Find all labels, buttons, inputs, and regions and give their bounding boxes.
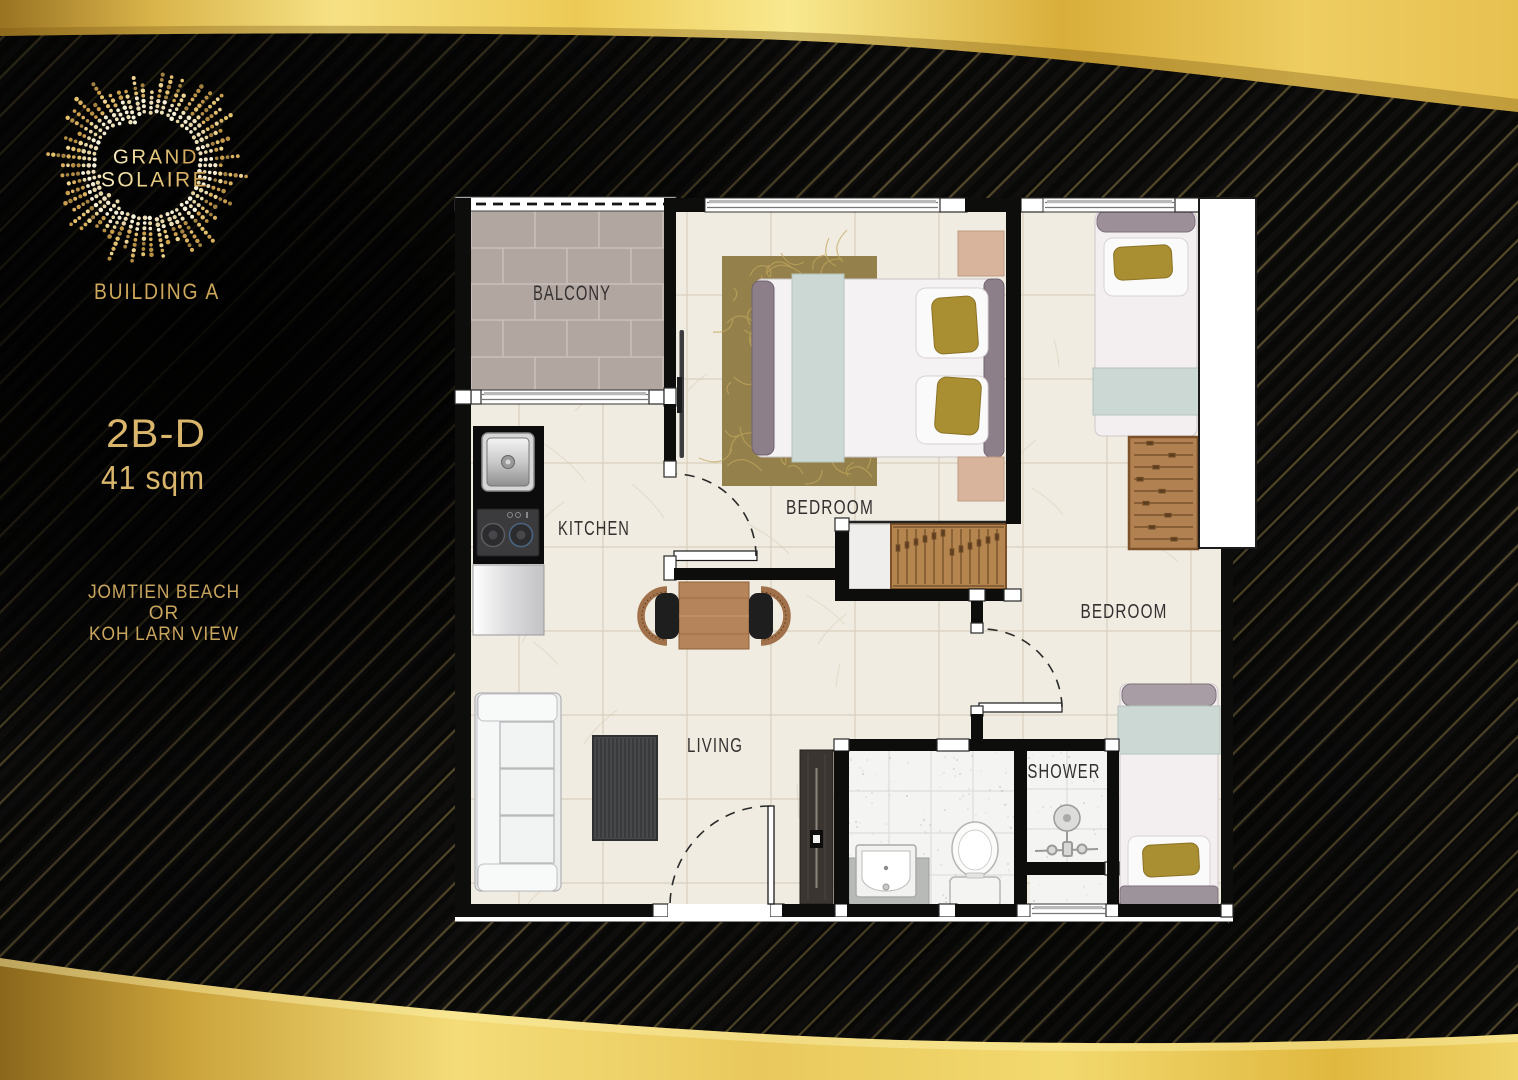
svg-text:2B-D: 2B-D	[106, 412, 206, 456]
svg-text:LIVING: LIVING	[687, 735, 743, 757]
svg-text:KOH LARN VIEW: KOH LARN VIEW	[89, 624, 239, 645]
svg-text:BALCONY: BALCONY	[533, 282, 611, 305]
svg-text:BUILDING A: BUILDING A	[94, 279, 220, 304]
svg-text:KITCHEN: KITCHEN	[558, 518, 630, 540]
svg-text:SOLAIRE: SOLAIRE	[101, 168, 209, 192]
svg-text:BEDROOM: BEDROOM	[1081, 601, 1168, 623]
svg-text:41 sqm: 41 sqm	[101, 459, 205, 496]
svg-text:BEDROOM: BEDROOM	[786, 497, 874, 519]
svg-text:GRAND: GRAND	[113, 147, 199, 169]
svg-text:JOMTIEN BEACH: JOMTIEN BEACH	[88, 582, 240, 603]
svg-text:SHOWER: SHOWER	[1028, 761, 1101, 783]
svg-text:OR: OR	[149, 603, 180, 624]
